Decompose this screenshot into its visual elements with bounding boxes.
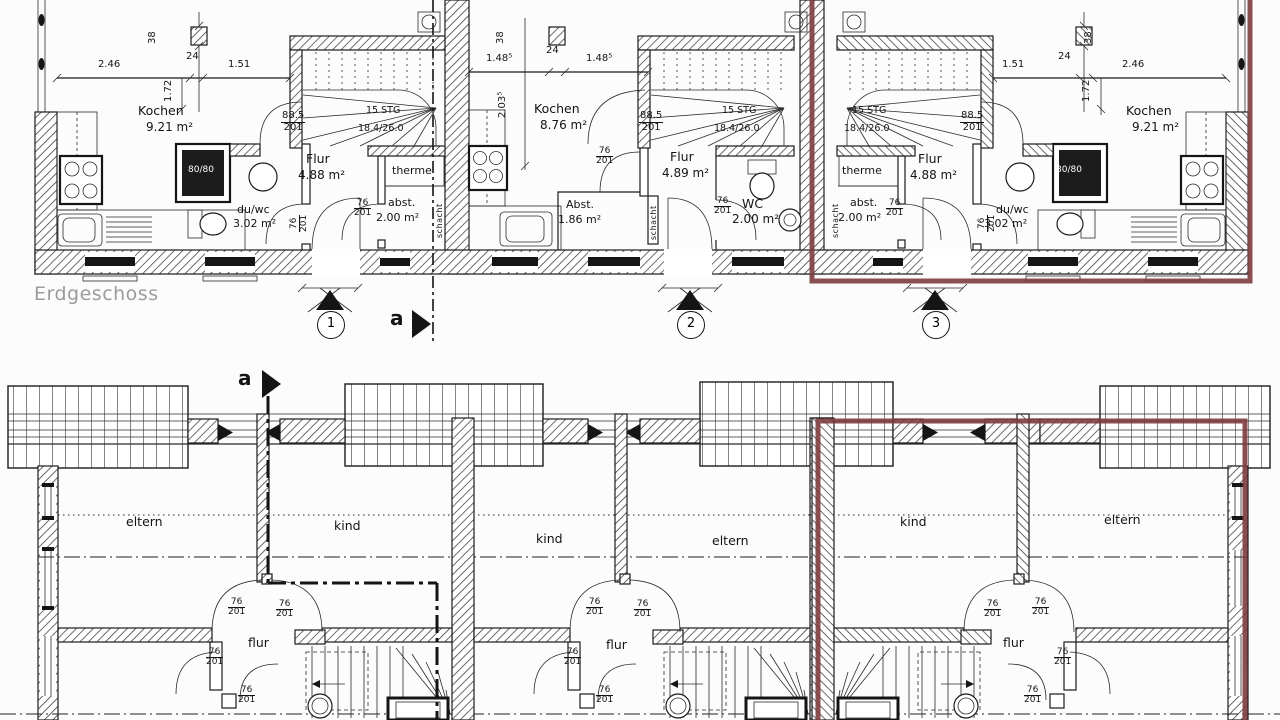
room-label-kind-M: kind <box>536 532 563 546</box>
entrance-marker-2: 2 <box>677 311 705 339</box>
dim-172-u1: 1.72 <box>164 80 175 102</box>
window-size-u2: 88.5201 <box>639 111 663 133</box>
dim-246-u1: 2.46 <box>98 60 120 71</box>
entrance-marker-1: 1 <box>317 311 345 339</box>
door-size-u3-bath: 76201 <box>978 215 998 232</box>
window-size-u1: 88.5201 <box>281 111 305 133</box>
door-size-u2-kitchen: 76201 <box>596 147 613 167</box>
room-label-abst-u2: Abst. <box>566 199 594 211</box>
shaft-label-u3: schacht <box>832 203 841 238</box>
room-label-eltern-R: eltern <box>1104 513 1141 527</box>
area-label-flur-u3: 4.88 m² <box>910 169 957 182</box>
stair-label-u2: 15 STG <box>722 106 756 116</box>
area-label-wc-u2: 2.00 m² <box>732 213 779 226</box>
dim-2035-u2: 2.03⁵ <box>498 92 509 118</box>
og-door-M2: 76201 <box>634 600 651 620</box>
og-door-M3: 76201 <box>564 648 581 668</box>
gf-unit1-linework <box>35 0 446 274</box>
stair-riserun-u3: 18.4/26.0 <box>844 124 890 134</box>
og-door-L3: 76201 <box>206 648 223 668</box>
room-label-kind-R: kind <box>900 515 927 529</box>
dim-24-u1: 24 <box>186 52 199 63</box>
og-door-L1: 76201 <box>228 598 245 618</box>
stair-label-u1: 15 STG <box>366 106 400 116</box>
dim-172-u3: 1.72 <box>1082 80 1093 102</box>
room-label-flur-u2: Flur <box>670 150 694 164</box>
og-door-R4: 76201 <box>1024 686 1041 706</box>
entrance-marker-3: 3 <box>922 311 950 339</box>
floor-title: Erdgeschoss <box>34 284 159 305</box>
room-label-flur-L: flur <box>248 636 269 650</box>
door-size-u1-flur: 76201 <box>354 199 371 219</box>
dim-38-u2: 38 <box>496 31 507 44</box>
og-door-L4: 76201 <box>238 686 255 706</box>
room-label-duwc-u1: du/wc <box>237 204 270 216</box>
room-label-abst-u1: abst. <box>388 197 415 209</box>
room-label-kochen-u2: Kochen <box>534 102 580 116</box>
gf-bottom-wall <box>35 249 1248 281</box>
door-size-u3-flur: 76201 <box>886 199 903 219</box>
og-room-walls <box>58 628 1228 642</box>
section-letter-top: a <box>390 308 404 330</box>
room-label-flur-u3: Flur <box>918 152 942 166</box>
area-label-duwc-u1: 3.02 m² <box>233 218 276 230</box>
gf-party-wall-1-2 <box>445 0 469 274</box>
room-label-wc-u2: WC <box>742 197 763 211</box>
area-label-kochen-u1: 9.21 m² <box>146 121 193 134</box>
room-label-kochen-u3: Kochen <box>1126 104 1172 118</box>
door-size-u1-bath: 76201 <box>290 215 310 232</box>
area-label-kochen-u2: 8.76 m² <box>540 119 587 132</box>
room-label-abst-u3: abst. <box>850 197 877 209</box>
og-door-M4: 76201 <box>596 686 613 706</box>
area-label-abst-u2: 1.86 m² <box>558 214 601 226</box>
section-letter-bottom: a <box>238 368 252 390</box>
room-label-therme-u1: therme <box>392 165 432 177</box>
room-label-kind-L: kind <box>334 519 361 533</box>
dim-1485b-u2: 1.48⁵ <box>586 54 612 65</box>
floor-plan-sheet: Kochen 9.21 m² Flur 4.88 m² du/wc 3.02 m… <box>0 0 1280 720</box>
stair-riserun-u2: 18.4/26.0 <box>714 124 760 134</box>
room-label-flur-M: flur <box>606 638 627 652</box>
dim-38-u3: 38 <box>1084 31 1095 44</box>
shower-size-u3: 80/80 <box>1056 166 1082 176</box>
area-label-abst-u1: 2.00 m² <box>376 212 419 224</box>
shaft-label-u2: schacht <box>650 205 659 240</box>
room-label-eltern-M: eltern <box>712 534 749 548</box>
upper-floor-plan <box>0 370 1280 720</box>
area-label-kochen-u3: 9.21 m² <box>1132 121 1179 134</box>
dim-246-u3: 2.46 <box>1122 60 1144 71</box>
og-door-R1: 76201 <box>1032 598 1049 618</box>
room-label-kochen-u1: Kochen <box>138 104 184 118</box>
room-label-eltern-L: eltern <box>126 515 163 529</box>
room-label-flur-u1: Flur <box>306 152 330 166</box>
area-label-flur-u2: 4.89 m² <box>662 167 709 180</box>
room-label-therme-u3: therme <box>842 165 882 177</box>
dim-38-u1: 38 <box>148 31 159 44</box>
dim-24-u3: 24 <box>1058 52 1071 63</box>
og-door-M1: 76201 <box>586 598 603 618</box>
stair-label-u3: 15 STG <box>852 106 886 116</box>
og-door-L2: 76201 <box>276 600 293 620</box>
shaft-label-u1: schacht <box>436 203 445 238</box>
shower-size-u1: 80/80 <box>188 166 214 176</box>
dim-1485a-u2: 1.48⁵ <box>486 54 512 65</box>
og-door-R2: 76201 <box>984 600 1001 620</box>
room-label-duwc-u3: du/wc <box>996 204 1029 216</box>
dim-151-u3: 1.51 <box>1002 60 1024 71</box>
area-label-abst-u3: 2.00 m² <box>838 212 881 224</box>
dim-151-u1: 1.51 <box>228 60 250 71</box>
dim-24-u2: 24 <box>546 46 559 57</box>
og-door-R3: 76201 <box>1054 648 1071 668</box>
area-label-flur-u1: 4.88 m² <box>298 169 345 182</box>
stair-riserun-u1: 18.4/26.0 <box>358 124 404 134</box>
door-size-u2-wc: 76201 <box>714 197 731 217</box>
window-size-u3: 88.5201 <box>960 111 984 133</box>
room-label-flur-R: flur <box>1003 636 1024 650</box>
